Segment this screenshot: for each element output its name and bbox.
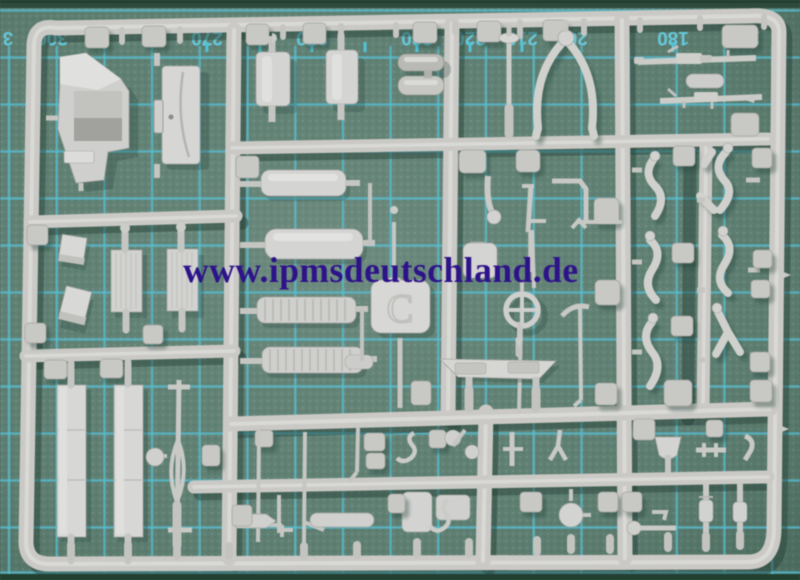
svg-text:www.ipmsdeutschland.de: www.ipmsdeutschland.de (183, 250, 579, 290)
svg-text:C: C (387, 286, 414, 331)
svg-text:3: 3 (3, 27, 14, 48)
